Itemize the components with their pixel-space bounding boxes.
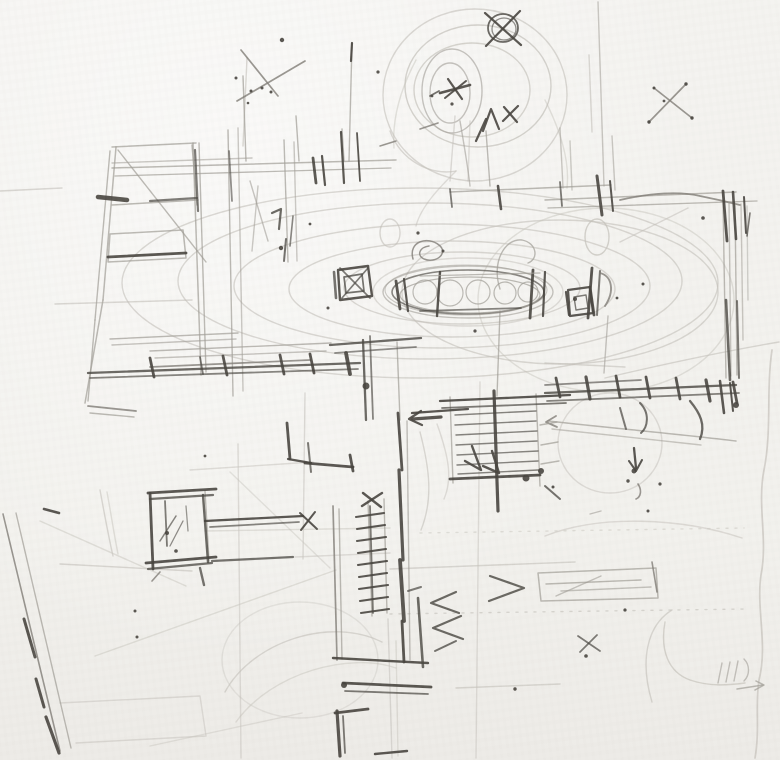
pencil-floor-plan-sketch bbox=[0, 0, 780, 760]
sketch-paper bbox=[0, 0, 780, 760]
